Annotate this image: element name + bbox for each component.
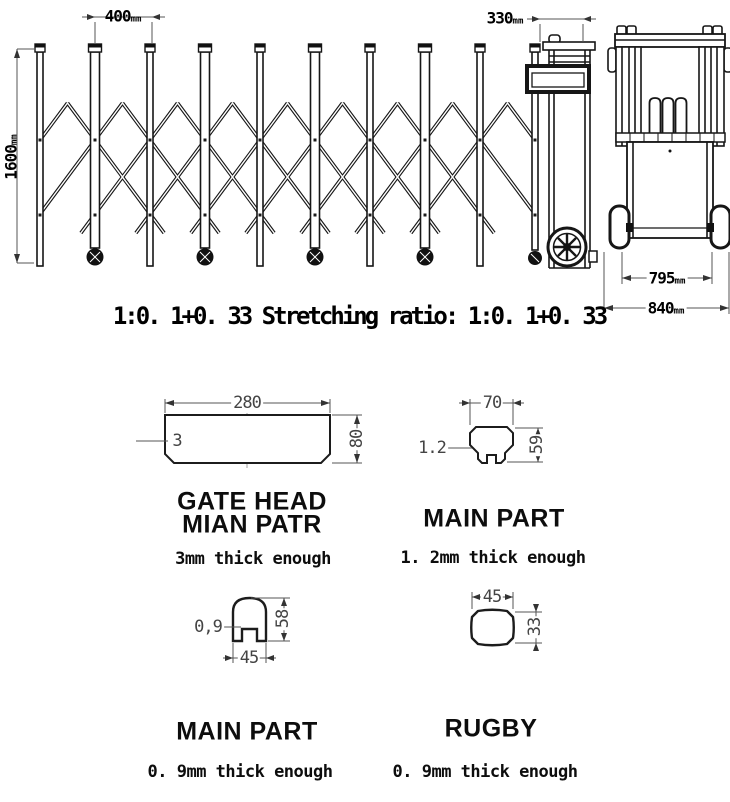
- rollers: [650, 98, 687, 133]
- gate-post: [477, 52, 483, 266]
- main-part-large-thickness: 1. 2mm thick enough: [401, 548, 586, 568]
- gate-post: [257, 52, 263, 266]
- gate-head-thickness: 3mm thick enough: [175, 549, 331, 569]
- dim-gate-head-wall: 3: [170, 431, 183, 451]
- gate-post: [311, 52, 320, 248]
- dim-outer-width: 840mm: [646, 299, 687, 318]
- rugby-title: RUGBY: [445, 715, 538, 744]
- stretching-ratio-caption: 1:0. 1+0. 33 Stretching ratio: 1:0. 1+0.…: [113, 302, 605, 330]
- gate-post: [91, 52, 100, 248]
- dim-rugby-height: 33: [525, 616, 545, 638]
- dim-main-large-width: 70: [481, 393, 503, 413]
- right-ear: [724, 48, 730, 72]
- gate-post: [367, 52, 373, 266]
- left-ear: [608, 48, 616, 72]
- gate-head-title-line2: MIAN PATR: [182, 511, 322, 540]
- main-part-small-title: MAIN PART: [176, 718, 318, 747]
- dim-rugby-width: 45: [481, 587, 503, 607]
- gate-post: [201, 52, 210, 248]
- main-part-large-title: MAIN PART: [423, 505, 565, 534]
- gate-post: [37, 52, 43, 266]
- dim-main-small-width: 45: [238, 648, 260, 668]
- main-part-small-thickness: 0. 9mm thick enough: [148, 762, 333, 782]
- rugby-thickness: 0. 9mm thick enough: [393, 762, 578, 782]
- dim-head-width: 330mm: [487, 9, 524, 28]
- dim-gate-head-width: 280: [231, 393, 263, 413]
- dim-main-large-height: 59: [527, 434, 547, 456]
- dim-gate-height: 1600mm: [2, 134, 21, 179]
- technical-drawing-page: 400mm 330mm 1600mm 795mm 840mm 1:0. 1+0.…: [0, 0, 730, 802]
- dim-main-small-height: 58: [273, 608, 293, 630]
- dim-main-large-wall: 1.2: [416, 438, 448, 458]
- dim-bay-width: 400mm: [105, 7, 142, 26]
- drawing-canvas: [0, 0, 730, 802]
- gate-elevation: [14, 14, 597, 268]
- gate-post: [421, 52, 430, 248]
- dim-inner-width: 795mm: [647, 269, 688, 288]
- dim-main-small-wall: 0,9: [192, 617, 224, 637]
- gate-post: [147, 52, 153, 266]
- dim-gate-head-height: 80: [347, 428, 367, 450]
